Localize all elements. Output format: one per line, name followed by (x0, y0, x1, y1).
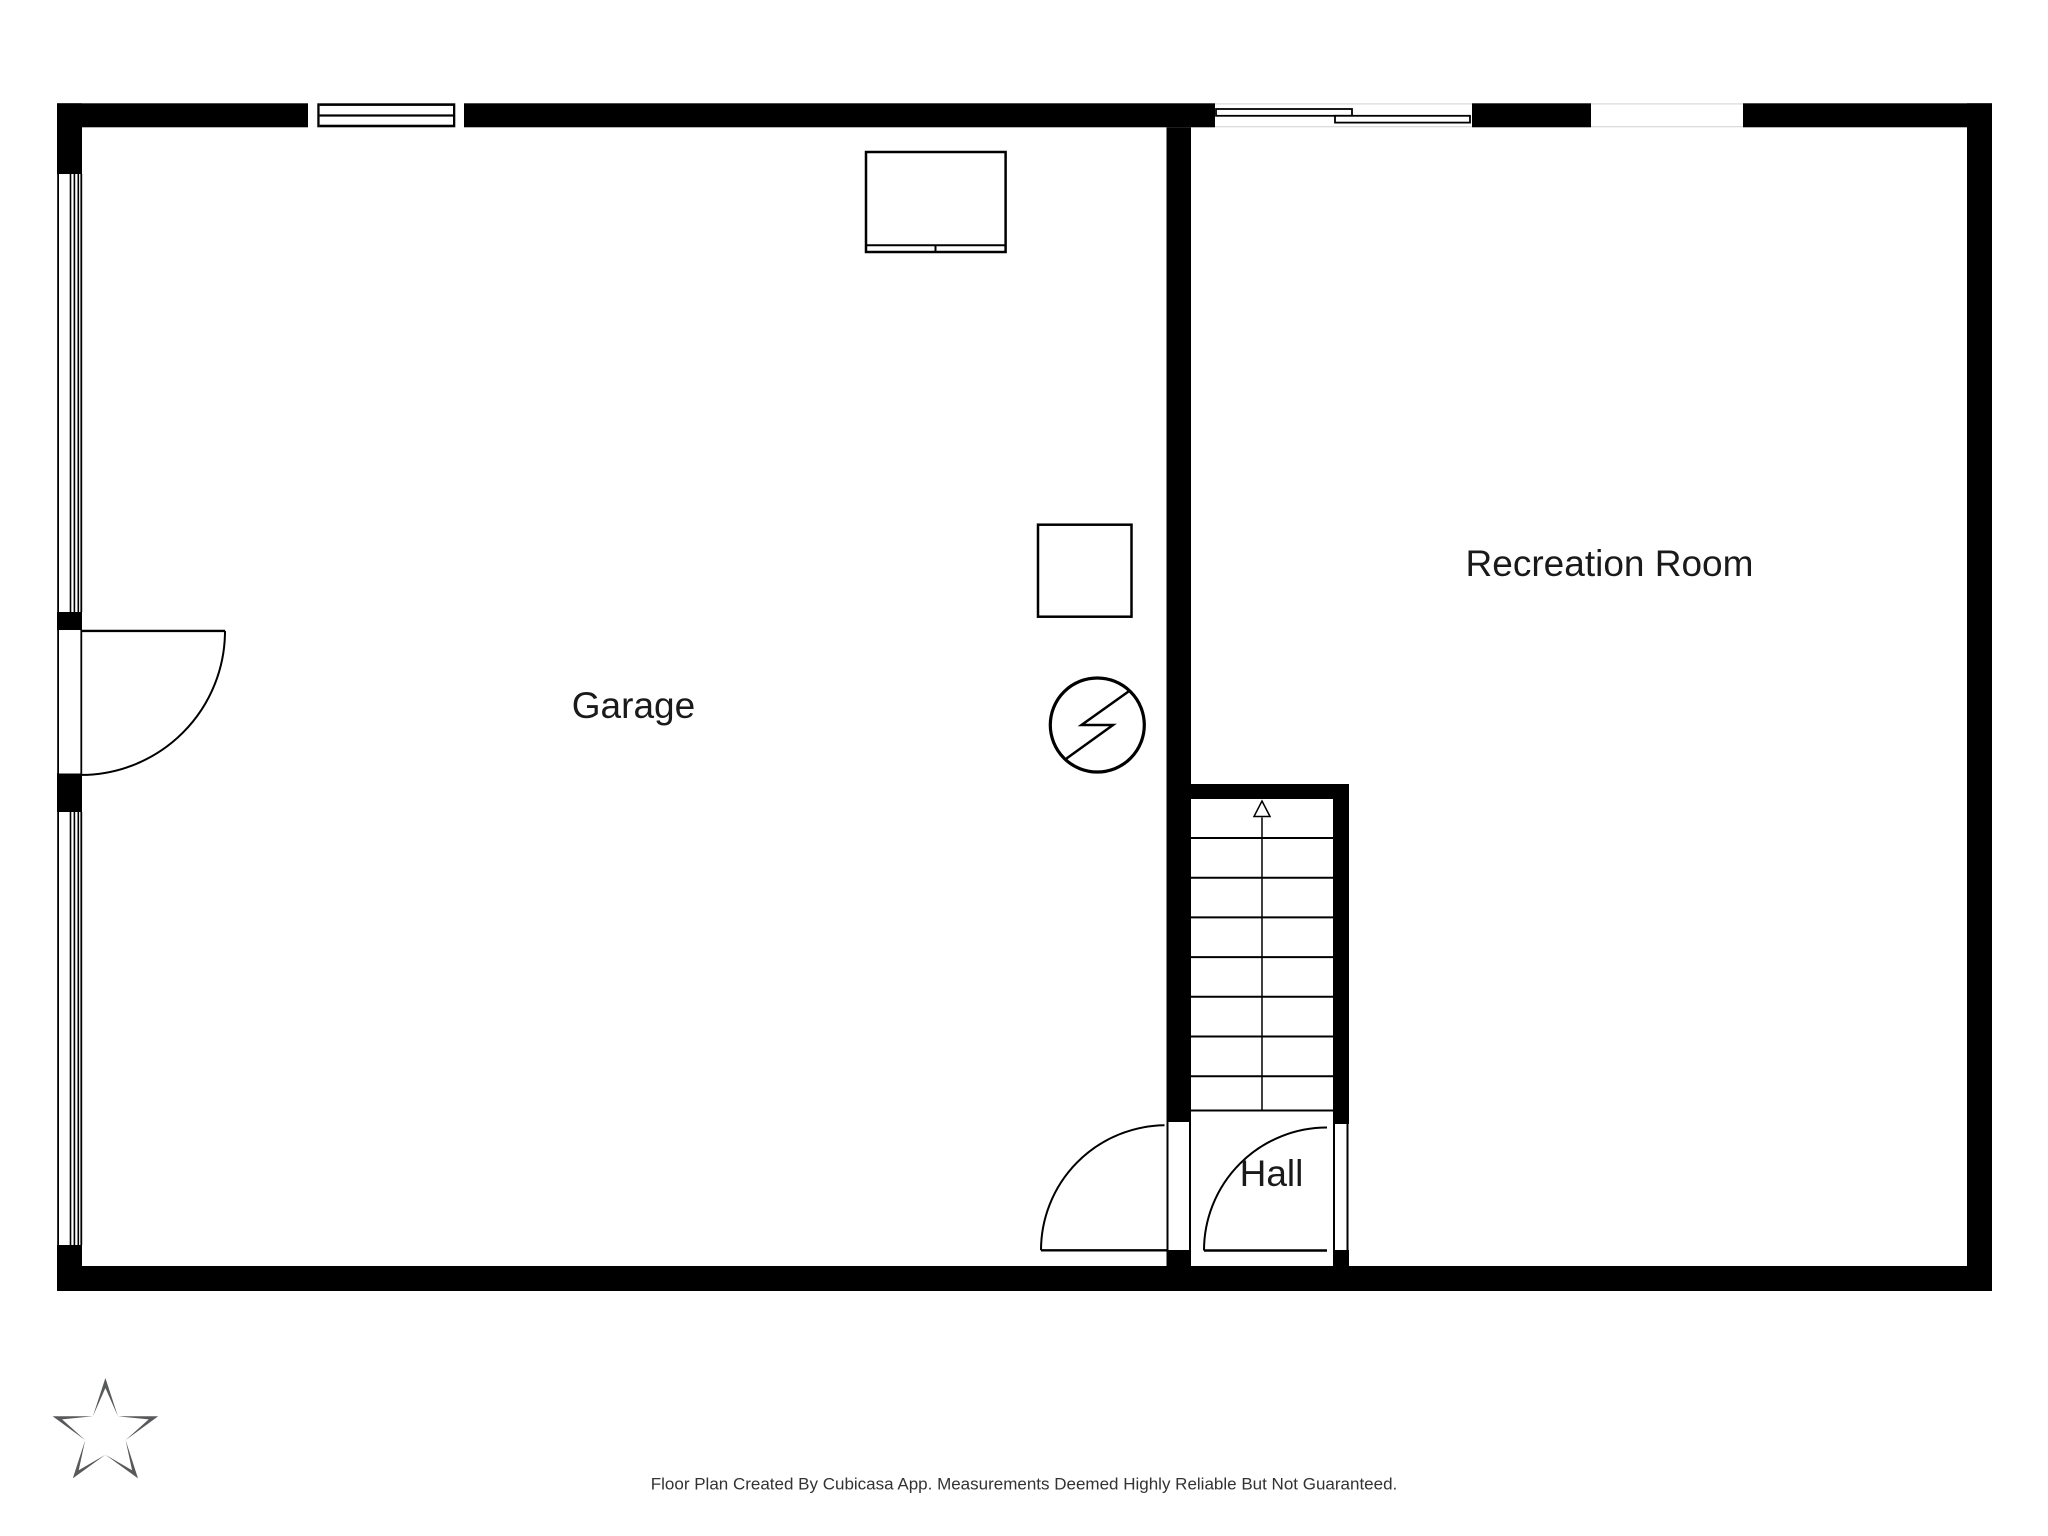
svg-text:Recreation Room: Recreation Room (1466, 543, 1754, 584)
svg-text:Garage: Garage (572, 685, 695, 726)
svg-text:Hall: Hall (1240, 1153, 1304, 1194)
svg-text:Floor Plan Created By Cubicasa: Floor Plan Created By Cubicasa App. Meas… (651, 1475, 1398, 1494)
